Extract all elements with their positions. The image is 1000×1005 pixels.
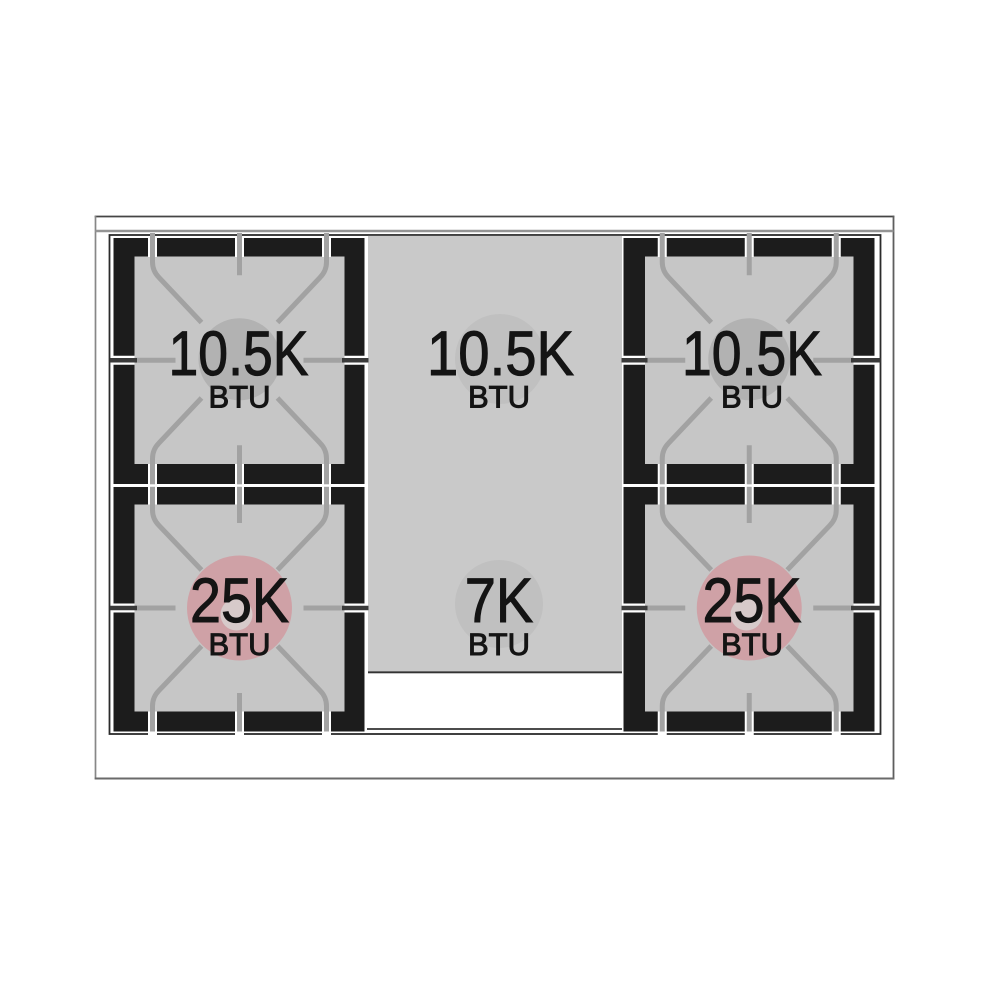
svg-text:BTU: BTU xyxy=(468,380,530,415)
svg-text:10.5K: 10.5K xyxy=(682,319,822,389)
svg-text:10.5K: 10.5K xyxy=(427,319,574,389)
svg-text:BTU: BTU xyxy=(468,627,530,662)
svg-text:25K: 25K xyxy=(703,566,802,636)
svg-text:BTU: BTU xyxy=(721,380,783,415)
svg-text:BTU: BTU xyxy=(209,627,271,662)
svg-text:BTU: BTU xyxy=(209,380,271,415)
svg-text:BTU: BTU xyxy=(721,627,783,662)
svg-text:10.5K: 10.5K xyxy=(169,319,309,389)
svg-text:7K: 7K xyxy=(465,566,534,636)
svg-text:25K: 25K xyxy=(190,566,289,636)
